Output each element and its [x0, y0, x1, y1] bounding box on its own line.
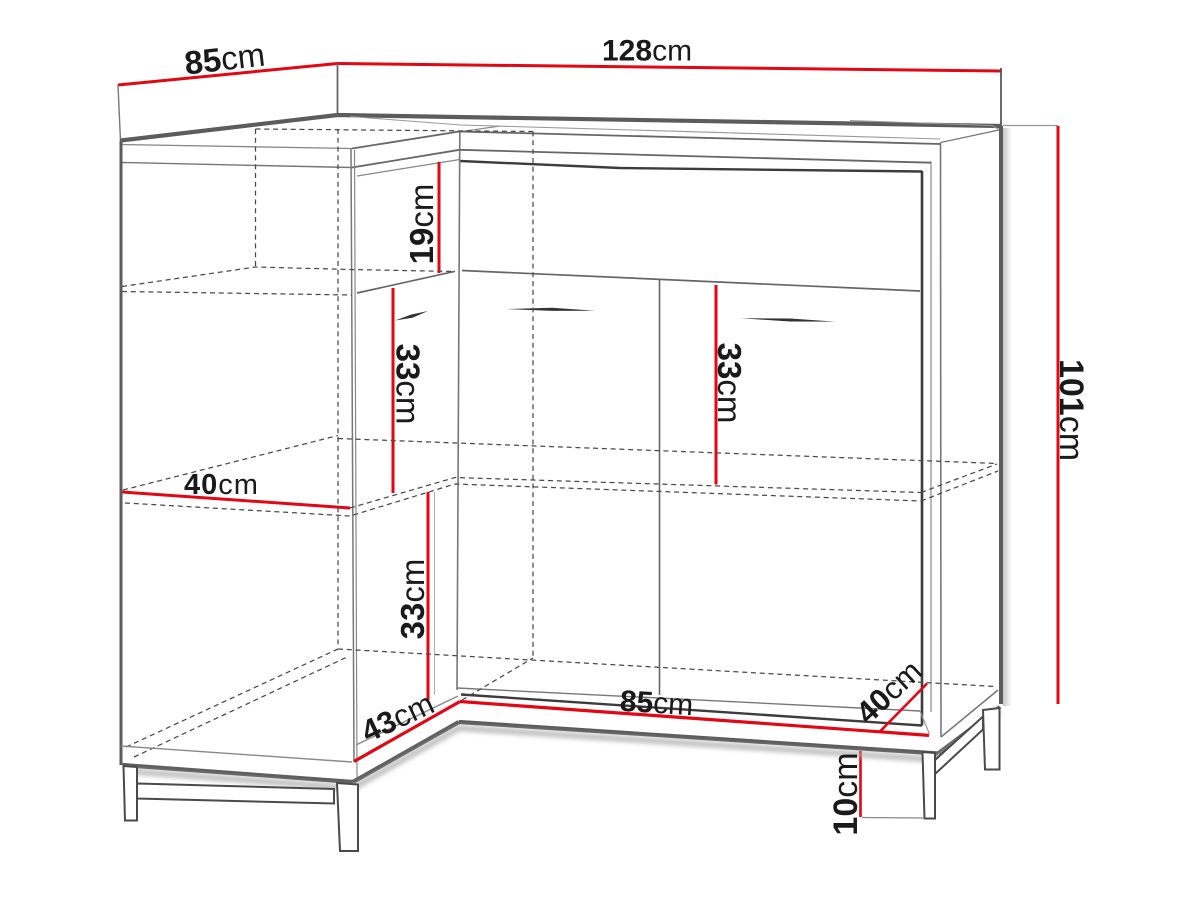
svg-text:10cm: 10cm	[827, 752, 865, 835]
svg-text:19cm: 19cm	[403, 184, 440, 265]
svg-text:128cm: 128cm	[602, 35, 692, 68]
svg-text:85cm: 85cm	[183, 36, 267, 82]
svg-text:33cm: 33cm	[394, 559, 431, 640]
svg-text:101cm: 101cm	[1052, 359, 1090, 461]
svg-text:40cm: 40cm	[184, 469, 259, 501]
svg-text:85cm: 85cm	[619, 685, 694, 722]
svg-text:33cm: 33cm	[711, 343, 748, 424]
svg-text:40cm: 40cm	[849, 653, 928, 730]
svg-text:33cm: 33cm	[390, 344, 427, 425]
